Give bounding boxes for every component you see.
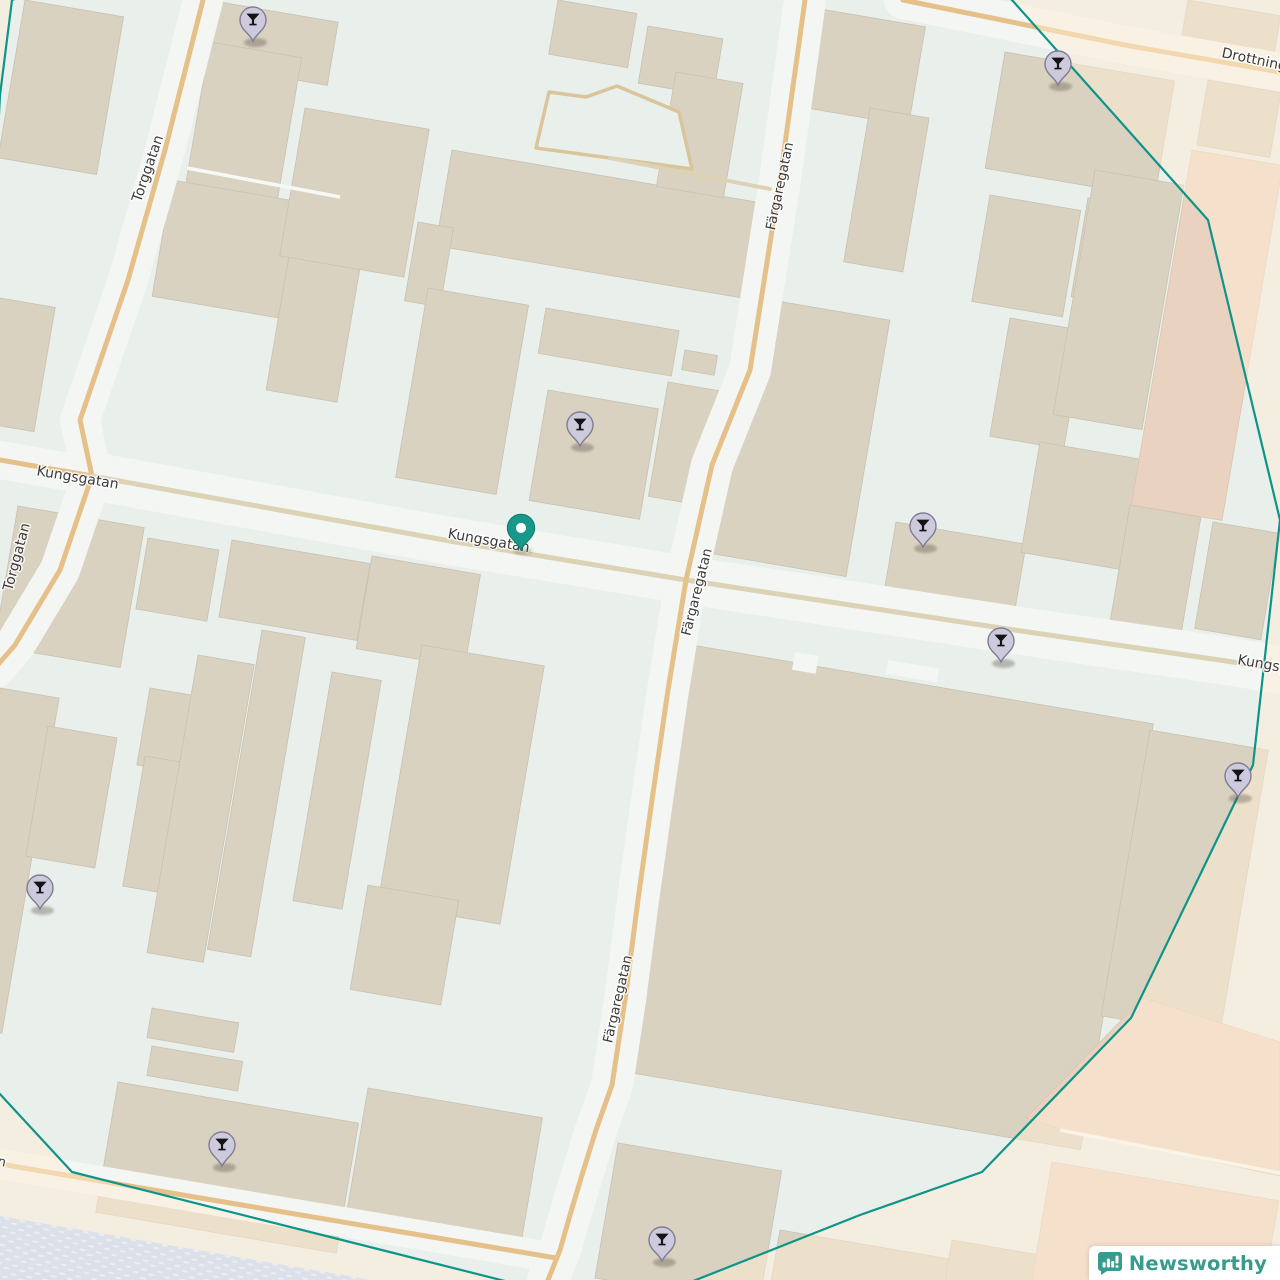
pin-shadow [914,544,937,553]
pin-shadow [1049,82,1072,91]
newsworthy-label: Newsworthy [1129,1252,1267,1275]
newsworthy-icon [1098,1251,1122,1275]
pin-shadow [1229,794,1252,803]
building [356,556,480,667]
building [136,538,219,621]
building [350,885,459,1005]
pin-shadow [31,906,54,915]
map-canvas[interactable]: KungsgatanKungsgatanKungsgatanTorggatanT… [0,0,1280,1280]
newsworthy-logo[interactable]: Newsworthy [1089,1246,1280,1280]
building [280,108,429,277]
pin-hole [516,523,526,533]
pin-shadow [213,1163,236,1172]
pin-shadow [653,1258,676,1267]
pin-shadow [513,547,532,554]
building [972,195,1081,317]
pin-shadow [571,443,594,452]
pin-shadow [992,659,1015,668]
building [529,390,658,519]
pin-shadow [244,38,267,47]
map[interactable]: KungsgatanKungsgatanKungsgatanTorggatanT… [0,0,1280,1280]
